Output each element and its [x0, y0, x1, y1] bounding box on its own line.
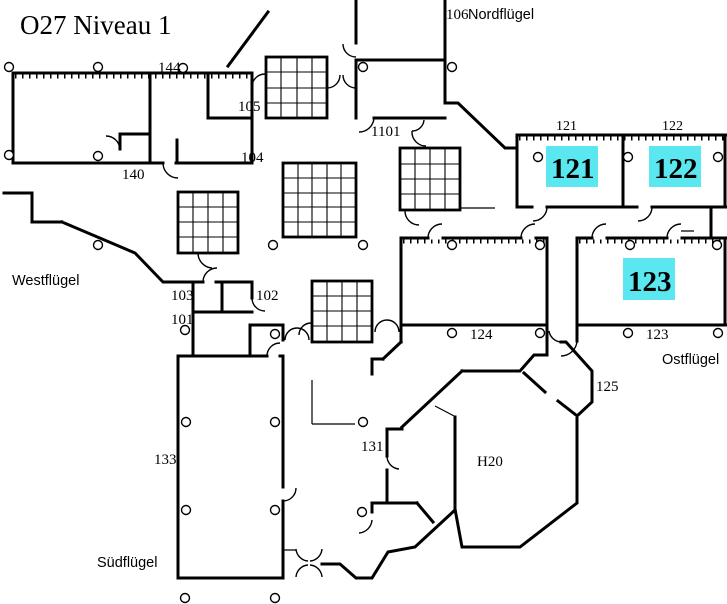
room-label-140: 140 [122, 167, 145, 183]
stairwell-grid-5 [312, 281, 372, 342]
room-label-101: 101 [171, 312, 194, 328]
room-label-124: 124 [470, 327, 493, 343]
room-121-highlight-label[interactable]: 121 [551, 153, 595, 185]
room-label-104: 104 [241, 150, 264, 166]
room-121-highlight[interactable]: 121 [546, 146, 598, 187]
room-123-highlight[interactable]: 123 [623, 258, 675, 300]
stairwell-grid-3 [400, 148, 460, 210]
room-label-1101: 1101 [371, 124, 400, 140]
room-label-103: 103 [171, 288, 194, 304]
room-label-133: 133 [154, 452, 177, 468]
room-label-121: 121 [556, 119, 577, 134]
floorplan-svg: 121 122 123 O27 Niveau 1 144 140 105 104… [0, 0, 727, 604]
room-label-144: 144 [158, 60, 181, 76]
room-label-123: 123 [646, 327, 669, 343]
stairwell-grid-2 [283, 163, 356, 237]
page-title: O27 Niveau 1 [20, 10, 171, 40]
room-label-125: 125 [596, 379, 619, 395]
wing-label-west: Westflügel [12, 273, 79, 289]
room-label-102: 102 [256, 288, 279, 304]
room-122-highlight-label[interactable]: 122 [654, 153, 698, 185]
room-123-highlight-label[interactable]: 123 [628, 266, 672, 298]
room-122-highlight[interactable]: 122 [649, 146, 701, 187]
floorplan-page: 121 122 123 O27 Niveau 1 144 140 105 104… [0, 0, 727, 604]
room-label-105: 105 [238, 99, 261, 115]
stairwell-grid-4 [178, 192, 238, 253]
room-label-131: 131 [361, 439, 384, 455]
room-label-h20: H20 [477, 454, 503, 470]
wing-label-east: Ostflügel [662, 352, 719, 368]
wing-label-north: Nordflügel [468, 7, 534, 23]
room-label-122: 122 [662, 119, 683, 134]
wing-label-south: Südflügel [97, 555, 157, 571]
stairwell-grid-1 [266, 57, 327, 118]
room-label-106: 106 [446, 7, 469, 23]
